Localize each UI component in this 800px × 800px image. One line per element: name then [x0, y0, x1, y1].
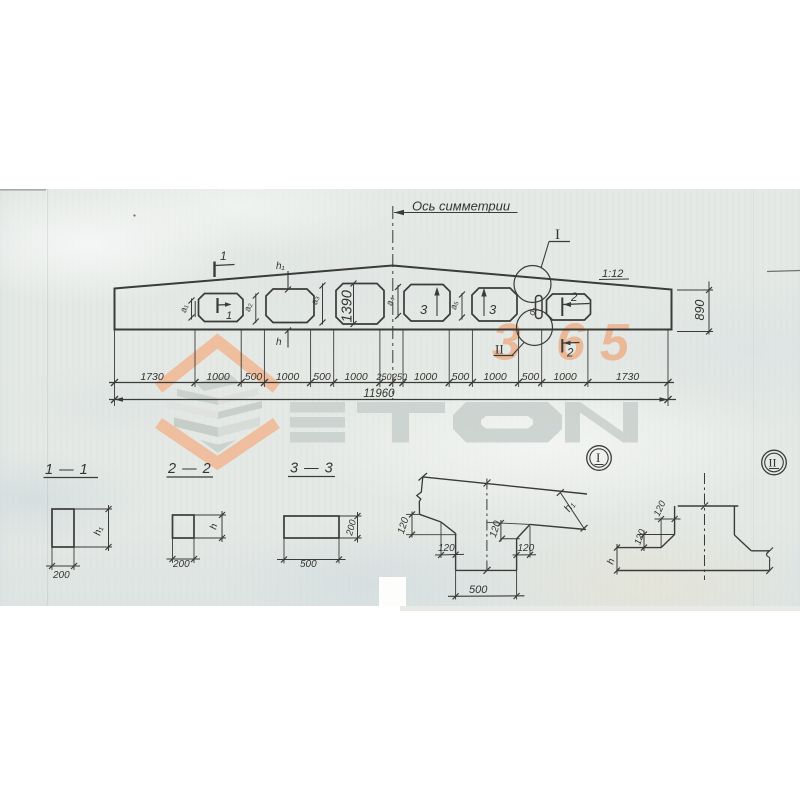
svg-text:3: 3	[420, 302, 428, 317]
svg-text:a₄: a₄	[384, 296, 395, 307]
svg-text:a₅: a₅	[448, 300, 459, 311]
svg-text:3: 3	[489, 302, 497, 317]
svg-text:500: 500	[245, 371, 263, 383]
svg-text:1000: 1000	[344, 371, 368, 383]
svg-text:1000: 1000	[276, 371, 300, 383]
svg-text:1000: 1000	[483, 371, 507, 383]
svg-text:120: 120	[518, 543, 535, 554]
svg-text:2: 2	[570, 292, 578, 304]
svg-text:120: 120	[438, 543, 455, 554]
svg-text:h₁: h₁	[562, 499, 578, 514]
svg-text:200: 200	[172, 559, 190, 570]
svg-text:250: 250	[375, 372, 391, 382]
svg-text:1390: 1390	[340, 290, 356, 322]
svg-text:a₂: a₂	[242, 302, 253, 313]
svg-text:II: II	[769, 456, 777, 470]
svg-text:I: I	[555, 227, 560, 243]
svg-text:Ось симметрии: Ось симметрии	[412, 199, 510, 214]
svg-text:500: 500	[452, 371, 470, 383]
svg-text:2 — 2: 2 — 2	[167, 461, 212, 477]
svg-text:1000: 1000	[414, 371, 438, 383]
svg-text:890: 890	[693, 300, 707, 321]
svg-text:250: 250	[391, 372, 407, 382]
svg-text:h₁: h₁	[92, 526, 105, 537]
svg-text:5: 5	[600, 314, 630, 372]
svg-text:I: I	[596, 450, 600, 465]
svg-text:a₃: a₃	[309, 295, 320, 306]
svg-text:1: 1	[226, 310, 232, 322]
svg-text:500: 500	[469, 584, 488, 596]
svg-text:1: 1	[220, 249, 227, 263]
svg-text:2: 2	[566, 348, 574, 360]
svg-text:II: II	[495, 342, 504, 357]
svg-text:200: 200	[52, 570, 70, 581]
svg-text:120: 120	[632, 527, 648, 546]
svg-text:1:12: 1:12	[602, 268, 623, 280]
svg-text:200: 200	[344, 518, 359, 538]
svg-text:1 — 1: 1 — 1	[45, 462, 89, 478]
svg-text:h: h	[208, 522, 220, 531]
svg-text:h: h	[276, 337, 282, 348]
svg-text:1730: 1730	[616, 371, 640, 383]
svg-text:1000: 1000	[553, 371, 577, 383]
svg-text:a₁: a₁	[178, 304, 189, 314]
svg-text:500: 500	[522, 371, 540, 383]
svg-text:11960: 11960	[363, 388, 395, 400]
svg-text:500: 500	[313, 371, 331, 383]
svg-text:500: 500	[300, 559, 317, 570]
svg-text:1000: 1000	[206, 371, 230, 383]
svg-text:h: h	[605, 557, 617, 566]
svg-text:120: 120	[396, 516, 412, 536]
svg-text:1730: 1730	[140, 371, 164, 383]
svg-text:3 — 3: 3 — 3	[290, 461, 334, 477]
svg-text:120: 120	[652, 499, 669, 519]
svg-text:h₁: h₁	[276, 261, 285, 272]
